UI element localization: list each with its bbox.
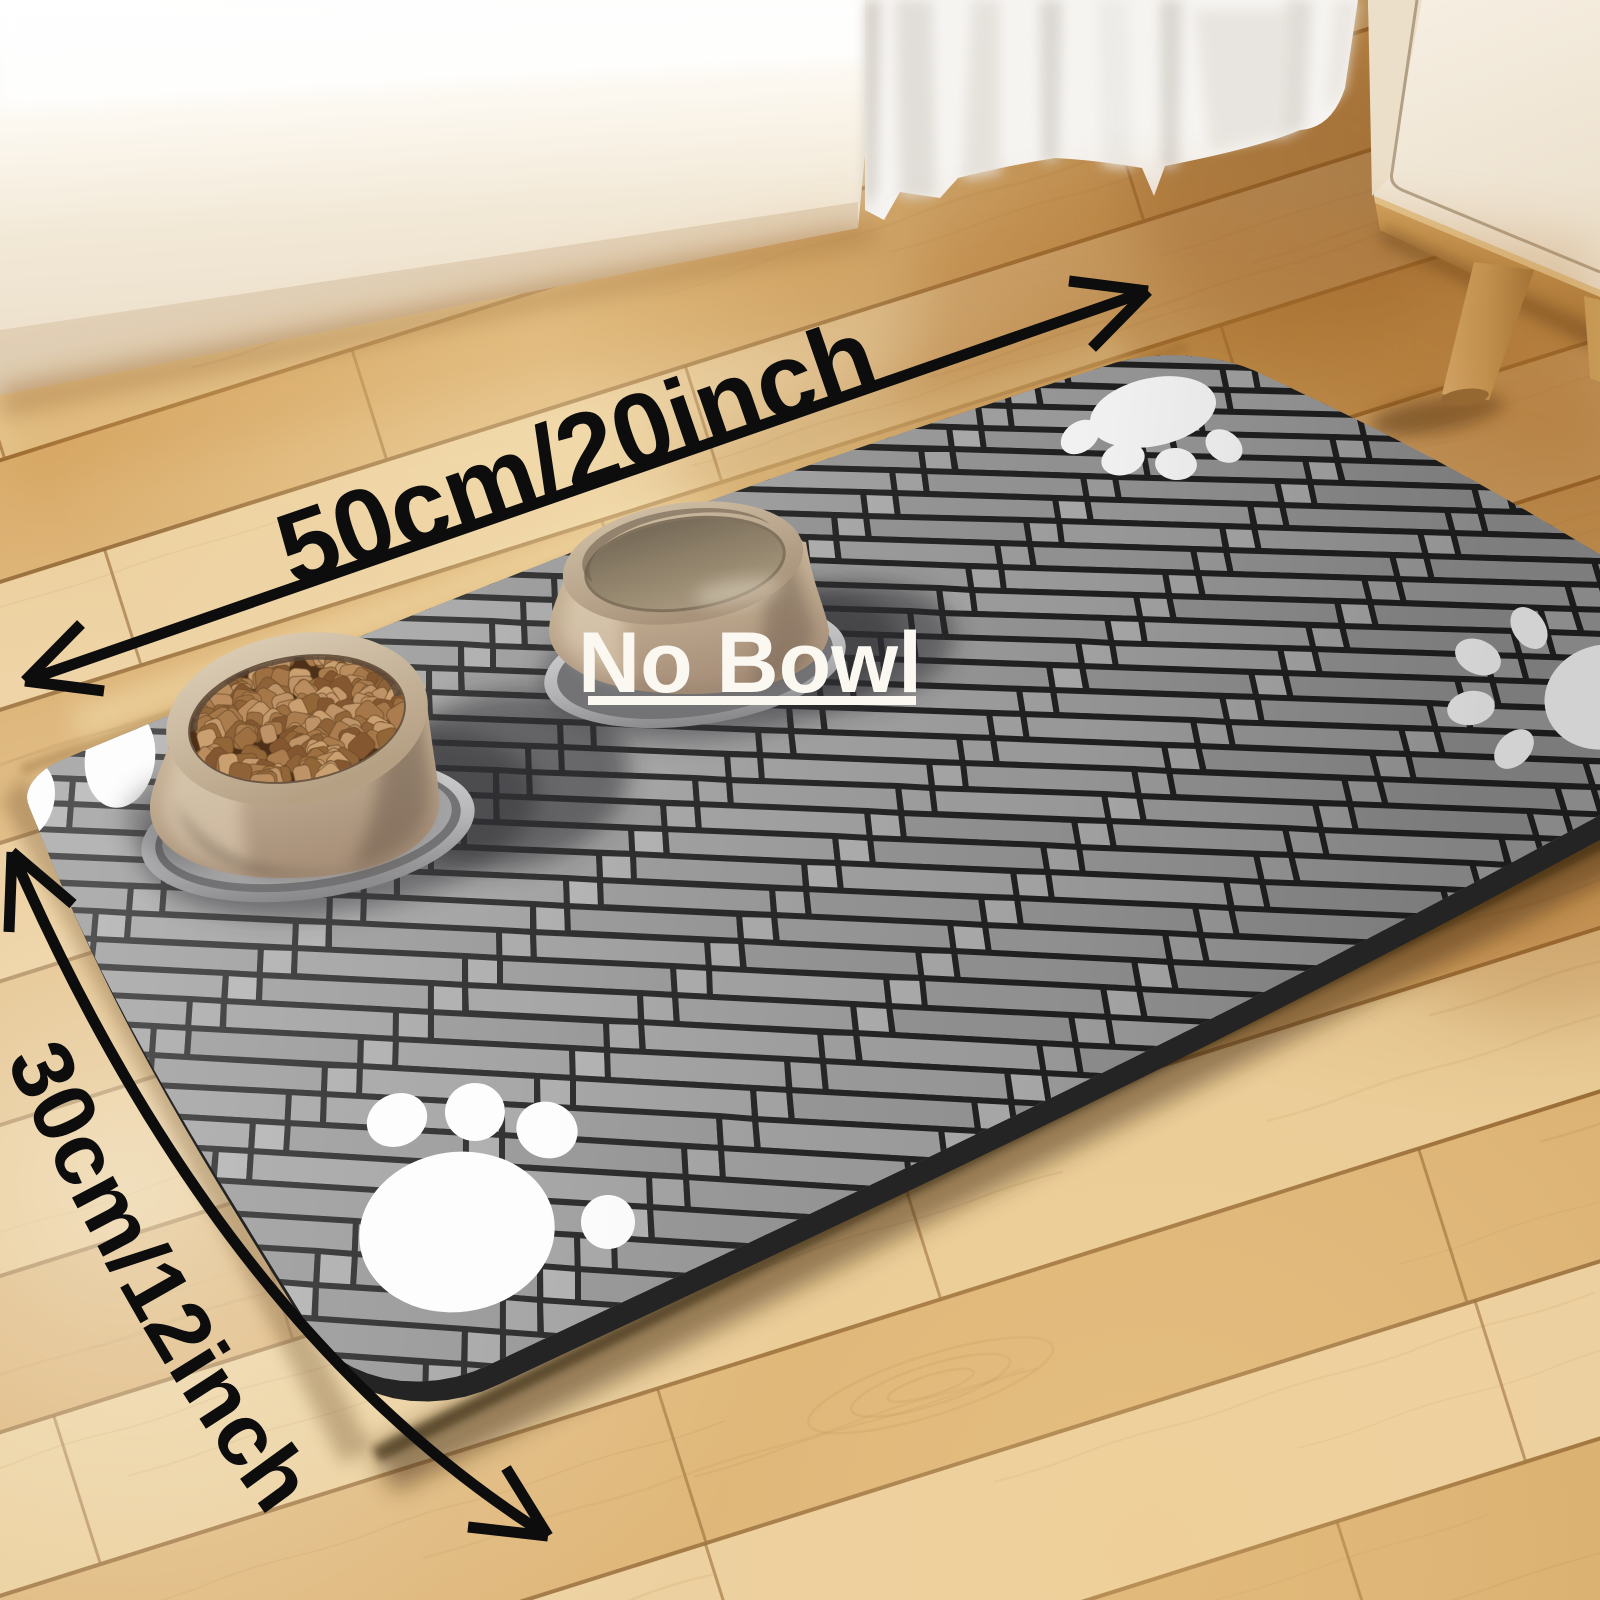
- svg-text:30cm/12inch: 30cm/12inch: [0, 1026, 333, 1528]
